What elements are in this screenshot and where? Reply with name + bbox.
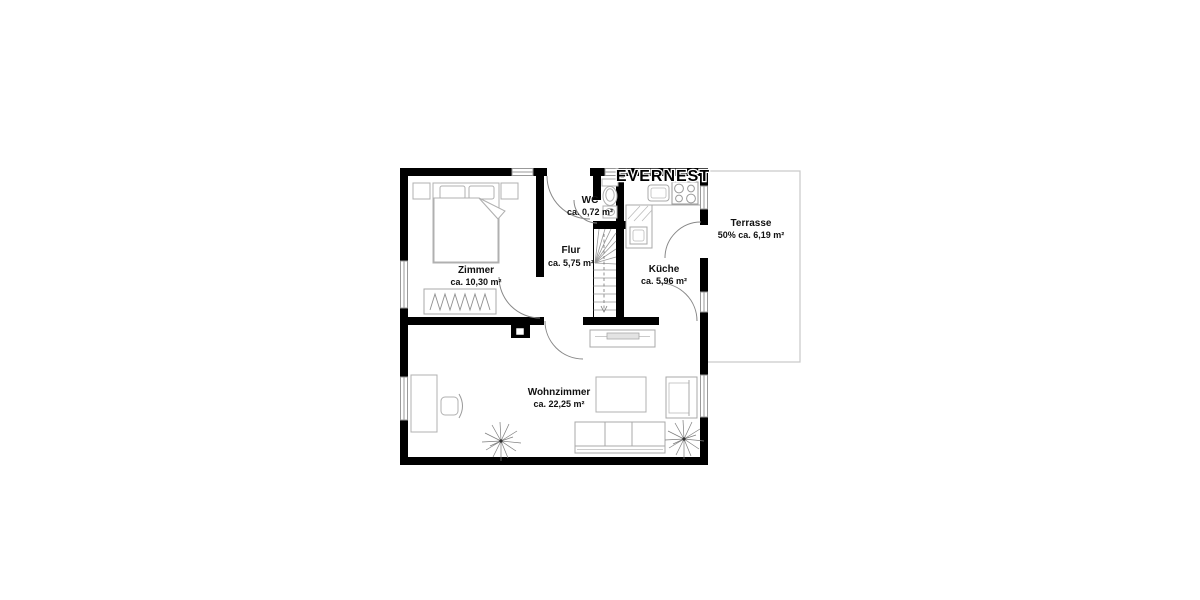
coffee-table bbox=[596, 377, 646, 412]
desk bbox=[411, 375, 437, 432]
nightstand-left bbox=[413, 183, 430, 199]
window-zimmer-left bbox=[401, 261, 408, 308]
sofa bbox=[575, 422, 665, 453]
room-area-zimmer: ca. 10,30 m² bbox=[450, 277, 501, 287]
room-area-wohnzimmer: ca. 22,25 m² bbox=[533, 399, 584, 409]
nightstand-right bbox=[501, 183, 518, 199]
watermark-logo: EVERNEST bbox=[616, 168, 710, 185]
room-label-flur: Flur bbox=[562, 245, 581, 256]
window-wohnzimmer-left bbox=[401, 377, 408, 420]
room-area-wc: ca. 0,72 m² bbox=[567, 207, 613, 217]
floor-plan-drawing: EVERNEST Zimmer ca. 10,30 m² WC ca. 0,72… bbox=[0, 0, 1200, 600]
window-kueche-right-upper bbox=[701, 186, 708, 209]
armchair bbox=[666, 377, 697, 418]
room-label-zimmer: Zimmer bbox=[458, 265, 494, 276]
window-zimmer-top bbox=[512, 169, 533, 176]
room-label-terrasse: Terrasse bbox=[731, 218, 772, 229]
room-label-kueche: Küche bbox=[649, 264, 680, 275]
background bbox=[0, 0, 1200, 600]
chimney-flue bbox=[516, 328, 524, 335]
wardrobe bbox=[424, 289, 496, 314]
room-label-wc: WC bbox=[582, 195, 599, 206]
pillow bbox=[469, 186, 494, 199]
room-label-wohnzimmer: Wohnzimmer bbox=[528, 387, 591, 398]
pillow bbox=[440, 186, 465, 199]
room-area-terrasse: 50% ca. 6,19 m² bbox=[718, 230, 785, 240]
kitchen-sink bbox=[648, 185, 669, 201]
window-wohnzimmer-right bbox=[701, 375, 708, 417]
room-area-kueche: ca. 5,96 m² bbox=[641, 276, 687, 286]
room-area-flur: ca. 5,75 m² bbox=[548, 258, 594, 268]
sideboard bbox=[590, 330, 655, 347]
window-kueche-right-lower bbox=[701, 292, 708, 312]
stove bbox=[672, 182, 698, 204]
floor-plan-page: EVERNEST Zimmer ca. 10,30 m² WC ca. 0,72… bbox=[0, 0, 1200, 600]
